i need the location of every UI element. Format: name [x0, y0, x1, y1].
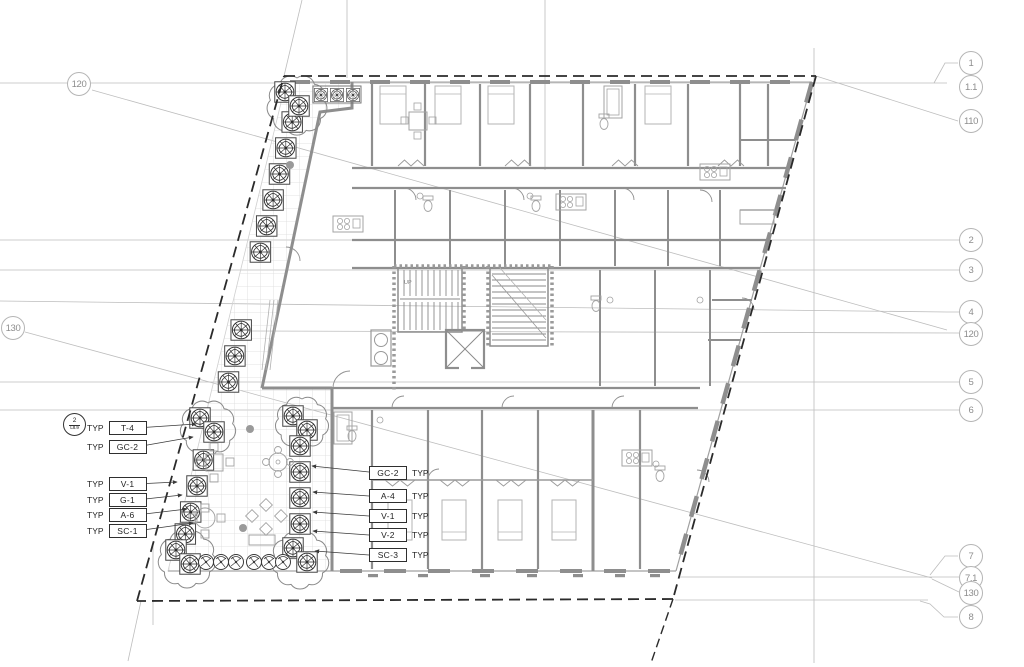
plant-tag: T-4 — [109, 421, 147, 435]
plant-tag: G-1 — [109, 493, 147, 507]
plant-tag-row: TYP A-6 — [87, 508, 147, 522]
plant-tag: GC-2 — [369, 466, 407, 480]
plant-tag-row: TYP SC-1 — [87, 524, 147, 538]
grid-bubble: 120 — [959, 322, 983, 346]
typ-label: TYP — [87, 479, 104, 489]
plant-tag: SC-3 — [369, 548, 407, 562]
typ-label: TYP — [412, 468, 429, 478]
typ-label: TYP — [412, 491, 429, 501]
plant-tag: V-1 — [369, 509, 407, 523]
typ-label: TYP — [412, 511, 429, 521]
grid-bubble: 7 — [959, 544, 983, 568]
plant-tag: V-2 — [369, 528, 407, 542]
plant-tag-row: TYP T-4 — [87, 421, 147, 435]
plant-tag-row: V-2 TYP — [369, 528, 429, 542]
grid-bubble: 110 — [959, 109, 983, 133]
grid-bubble: 6 — [959, 398, 983, 422]
plant-tag: A-6 — [109, 508, 147, 522]
grid-bubble: 120 — [67, 72, 91, 96]
grid-bubble: 4 — [959, 300, 983, 324]
typ-label: TYP — [87, 510, 104, 520]
plant-tag-row: GC-2 TYP — [369, 466, 429, 480]
grid-bubble: 3 — [959, 258, 983, 282]
plant-tag-row: TYP G-1 — [87, 493, 147, 507]
typ-label: TYP — [87, 526, 104, 536]
detail-number: 2 — [69, 417, 81, 426]
detail-marker: 2 L8.9 — [63, 413, 86, 436]
plant-tag: V-1 — [109, 477, 147, 491]
floor-plan-drawing: UP — [0, 0, 1024, 667]
plant-tag: GC-2 — [109, 440, 147, 454]
grid-bubble: 130 — [1, 316, 25, 340]
typ-label: TYP — [87, 423, 104, 433]
grid-bubble: 8 — [959, 605, 983, 629]
typ-label: TYP — [87, 495, 104, 505]
grid-bubble: 2 — [959, 228, 983, 252]
grid-bubble: 130 — [959, 581, 983, 605]
typ-label: TYP — [412, 530, 429, 540]
detail-sheet: L8.9 — [70, 426, 79, 432]
plant-tag: SC-1 — [109, 524, 147, 538]
floor-plan-sheet: UP 2 L8.9 TYP T-4 TYP GC-2 TYP V-1 TYP G… — [0, 0, 1024, 667]
grid-bubble: 1.1 — [959, 75, 983, 99]
typ-label: TYP — [87, 442, 104, 452]
plant-tag-row: V-1 TYP — [369, 509, 429, 523]
grid-bubble: 1 — [959, 51, 983, 75]
grid-bubble: 5 — [959, 370, 983, 394]
typ-label: TYP — [412, 550, 429, 560]
stair-up-label: UP — [404, 280, 412, 286]
plant-tag: A-4 — [369, 489, 407, 503]
plant-tag-row: TYP GC-2 — [87, 440, 147, 454]
plant-tag-row: TYP V-1 — [87, 477, 147, 491]
plant-tag-row: SC-3 TYP — [369, 548, 429, 562]
plant-tag-row: A-4 TYP — [369, 489, 429, 503]
